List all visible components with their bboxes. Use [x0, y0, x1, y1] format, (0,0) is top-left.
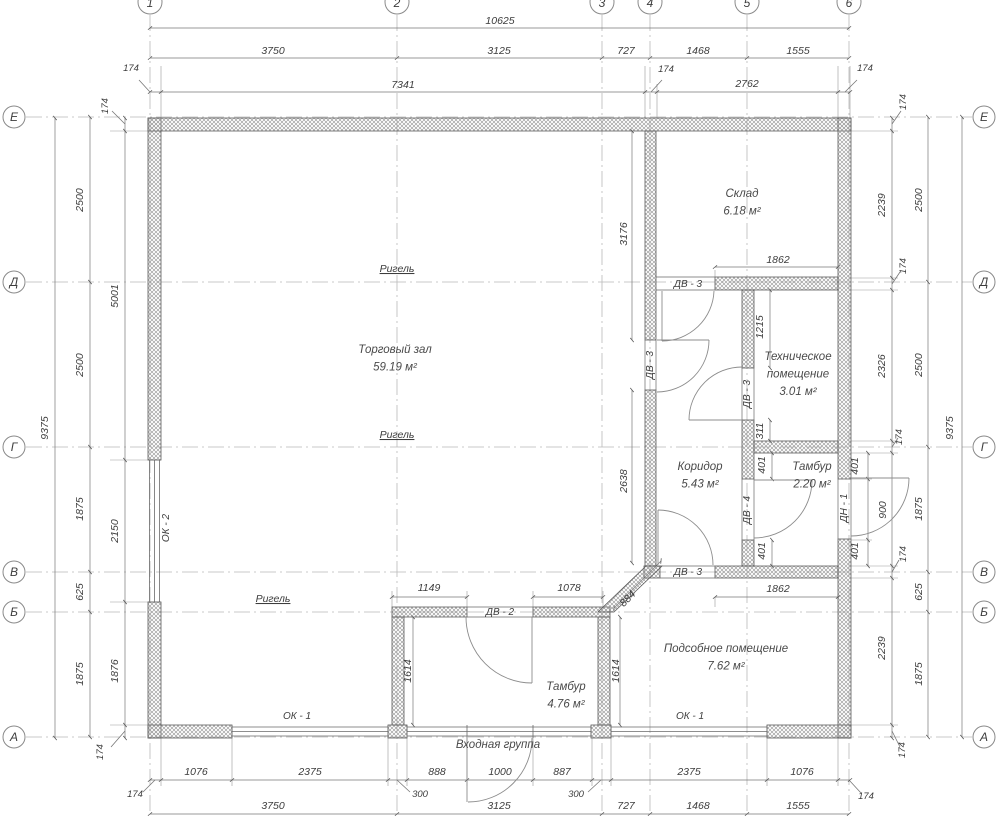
beam-label: Ригель — [256, 593, 291, 605]
dim-label: 401 — [849, 542, 861, 560]
dim-label: 1862 — [766, 583, 790, 595]
axis-label-1: 1 — [147, 0, 154, 10]
dim-label: 174 — [858, 791, 874, 802]
dim-label: 300 — [412, 789, 429, 800]
dim-label: 1000 — [488, 766, 512, 778]
opening-label: ДВ - 4 — [742, 495, 753, 525]
axis-label-Д-right: Д — [978, 275, 989, 289]
dim-label: 1215 — [754, 315, 766, 339]
dim-label: 2500 — [74, 188, 86, 213]
dim-label: 1875 — [913, 497, 925, 521]
dim-label: 5001 — [109, 284, 121, 307]
dim-label: 2500 — [913, 353, 925, 378]
room-label: Тамбур — [546, 681, 586, 693]
wall-sklad-bottom — [715, 277, 838, 290]
opening-label: ДН - 1 — [839, 494, 850, 524]
wall-tambour-top-1 — [392, 607, 467, 617]
wall-mid-1 — [742, 290, 754, 368]
dim-label: 625 — [913, 583, 925, 601]
axis-label-А-right: А — [979, 730, 988, 744]
dim-label: 1468 — [686, 800, 710, 812]
axis-label-Е-left: Е — [10, 110, 19, 124]
wall-mid-3 — [742, 540, 754, 566]
room-label: Техническое — [764, 351, 831, 363]
dim-label: 2500 — [913, 188, 925, 213]
room-label: Тамбур — [792, 461, 832, 473]
dim-label: 625 — [74, 583, 86, 601]
room-label: 4.76 м² — [547, 699, 585, 711]
opening-label: ОК - 1 — [283, 711, 311, 722]
dim-label: 174 — [127, 789, 143, 800]
grid-axis-lines — [26, 15, 972, 814]
dim-label: 900 — [877, 501, 889, 519]
wall-tambour-right — [598, 617, 610, 725]
wall-corridor-bottom — [715, 566, 838, 578]
beam-label: Ригель — [380, 263, 415, 275]
dim-label: 888 — [428, 766, 446, 778]
dim-label: 174 — [898, 546, 909, 562]
room-label: Склад — [726, 188, 759, 200]
dim-label: 3750 — [261, 45, 285, 57]
window-ok1-right — [611, 725, 767, 738]
dimension-labels: 1062537503125727146815551747341174276217… — [39, 15, 956, 812]
dim-label: 1862 — [766, 254, 790, 266]
extension-lines — [110, 66, 898, 786]
door-dv3-corridor-bottom — [658, 510, 713, 565]
room-label: 3.01 м² — [779, 386, 817, 398]
dim-label: 174 — [898, 94, 909, 110]
opening-label: ДВ - 2 — [485, 607, 515, 618]
room-label: 5.43 м² — [681, 479, 719, 491]
dim-label: 1875 — [913, 662, 925, 686]
wall-bottom-2 — [767, 725, 851, 738]
dim-label: 174 — [658, 64, 674, 75]
wall-right-upper — [838, 118, 851, 479]
opening-label: ДВ - 3 — [742, 379, 753, 409]
wall-top — [148, 118, 851, 131]
dim-label: 3176 — [618, 222, 630, 246]
door-dv3-sklad — [662, 291, 714, 341]
dim-label: 727 — [617, 800, 636, 812]
wall-bottom-pier-2 — [591, 725, 611, 738]
dim-label: 2239 — [876, 636, 888, 661]
dim-label: 1875 — [74, 497, 86, 521]
room-label: 7.62 м² — [707, 661, 745, 673]
door-dv3-corridor-left — [657, 340, 709, 392]
wall-mid-2 — [742, 420, 754, 479]
dim-label: 2500 — [74, 353, 86, 378]
opening-label: ДВ - 3 — [673, 567, 703, 578]
entrance-label: Входная группа — [456, 739, 540, 751]
dim-label: 2375 — [297, 766, 322, 778]
beam-label: Ригель — [380, 429, 415, 441]
wall-corridor-lower — [645, 390, 656, 566]
room-label: Подсобное помещение — [664, 643, 788, 655]
axis-label-Б-right: Б — [980, 605, 988, 619]
axis-label-2: 2 — [393, 0, 401, 10]
dim-label: 2638 — [618, 469, 630, 494]
dim-label: 9375 — [39, 416, 51, 440]
room-label: Коридор — [677, 461, 723, 473]
dim-label: 174 — [897, 742, 908, 758]
room-label: помещение — [767, 369, 829, 381]
wall-bottom-pier-1 — [388, 725, 407, 738]
dim-label: 727 — [617, 45, 636, 57]
dim-label: 401 — [756, 542, 768, 560]
room-label: Торговый зал — [358, 344, 432, 356]
dim-label: 1875 — [74, 662, 86, 686]
dim-label: 300 — [568, 789, 585, 800]
dim-label: 1614 — [402, 659, 414, 683]
room-label: 6.18 м² — [723, 206, 761, 218]
opening-label: ДВ - 3 — [645, 350, 656, 380]
opening-label: ОК - 2 — [161, 514, 172, 543]
dim-label: 1076 — [790, 766, 814, 778]
door-dv2 — [466, 617, 532, 683]
dim-label: 3125 — [487, 800, 511, 812]
dim-label: 174 — [95, 744, 106, 760]
axis-label-А-left: А — [9, 730, 18, 744]
room-label: 2.20 м² — [792, 479, 831, 491]
dim-label: 311 — [754, 423, 766, 440]
windows — [148, 460, 767, 738]
dim-label: 887 — [553, 766, 572, 778]
dim-label: 174 — [123, 63, 139, 74]
axis-label-Г-left: Г — [11, 440, 19, 454]
dim-label: 401 — [849, 457, 861, 475]
dim-label: 1149 — [418, 582, 441, 594]
dim-label: 1555 — [786, 800, 810, 812]
axis-label-Е-right: Е — [980, 110, 989, 124]
wall-left-lower — [148, 602, 161, 738]
dim-label: 1555 — [786, 45, 810, 57]
dim-label: 1876 — [109, 659, 121, 683]
dim-label: 2239 — [876, 193, 888, 218]
opening-label: ДВ - 3 — [673, 279, 703, 290]
window-ok1-left — [232, 725, 388, 738]
dim-label: 1614 — [610, 659, 622, 683]
door-dv3-mid — [689, 367, 742, 420]
dim-label: 174 — [857, 63, 873, 74]
axis-label-В-left: В — [10, 565, 18, 579]
dim-label: 3750 — [261, 800, 285, 812]
dim-leaders — [111, 80, 901, 793]
opening-label: ОК - 1 — [676, 711, 704, 722]
axis-label-Б-left: Б — [10, 605, 18, 619]
wall-tech-bottom — [754, 441, 838, 453]
dim-label: 1468 — [686, 45, 710, 57]
wall-right-lower — [838, 539, 851, 738]
axis-label-3: 3 — [599, 0, 606, 10]
dim-label: 174 — [898, 258, 909, 274]
dim-label: 9375 — [944, 416, 956, 440]
room-label: 59.19 м² — [373, 362, 418, 374]
axis-label-Д-left: Д — [8, 275, 19, 289]
dim-label: 7341 — [391, 79, 414, 91]
dim-label: 401 — [756, 456, 768, 474]
axis-label-В-right: В — [980, 565, 988, 579]
axis-label-4: 4 — [647, 0, 654, 10]
axis-label-Г-right: Г — [981, 440, 989, 454]
axis-label-6: 6 — [846, 0, 853, 10]
window-entrance-band — [407, 725, 591, 738]
dim-label: 2326 — [876, 354, 888, 379]
dimension-lines — [55, 28, 962, 814]
dim-label: 10625 — [485, 15, 514, 27]
dim-label: 3125 — [487, 45, 511, 57]
axis-label-5: 5 — [744, 0, 751, 10]
dim-label: 2375 — [676, 766, 701, 778]
wall-corridor-upper — [645, 131, 656, 340]
dim-label: 1078 — [557, 582, 581, 594]
floor-plan-drawing: 123456ЕЕДДГГВВББАА 106253750312572714681… — [0, 0, 1000, 820]
dim-label: 174 — [100, 98, 111, 114]
dim-label: 1076 — [184, 766, 208, 778]
wall-bottom-1 — [148, 725, 232, 738]
dim-label: 2762 — [734, 78, 759, 90]
dim-label: 174 — [894, 429, 905, 445]
floor-plan-svg: 123456ЕЕДДГГВВББАА 106253750312572714681… — [0, 0, 1000, 820]
dim-label: 2150 — [109, 519, 121, 544]
wall-left-upper — [148, 118, 161, 460]
